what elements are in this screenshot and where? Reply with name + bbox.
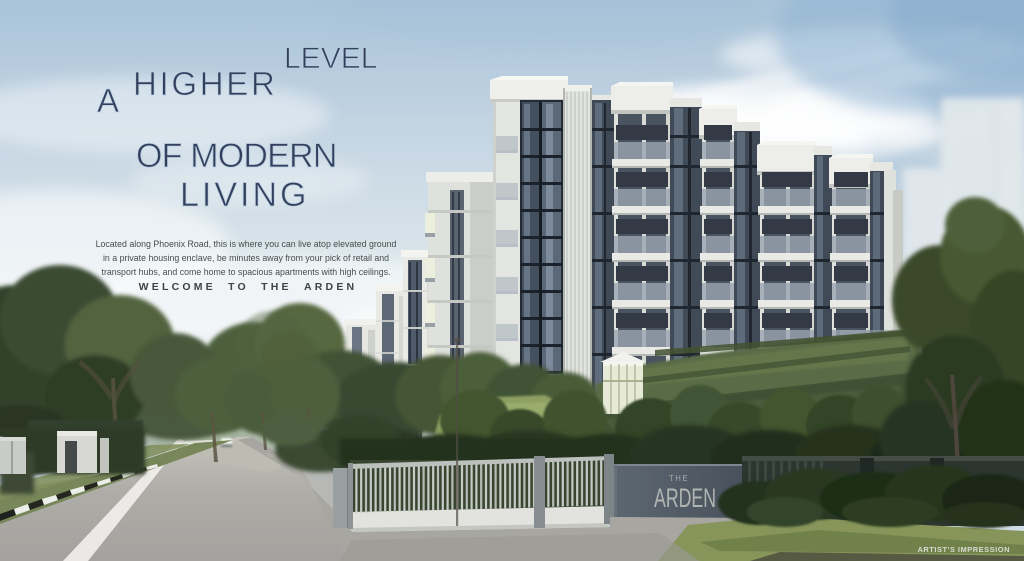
svg-text:THE: THE — [669, 474, 689, 483]
svg-text:ARTIST'S IMPRESSION: ARTIST'S IMPRESSION — [917, 545, 1010, 554]
svg-text:ARDEN: ARDEN — [654, 483, 716, 513]
